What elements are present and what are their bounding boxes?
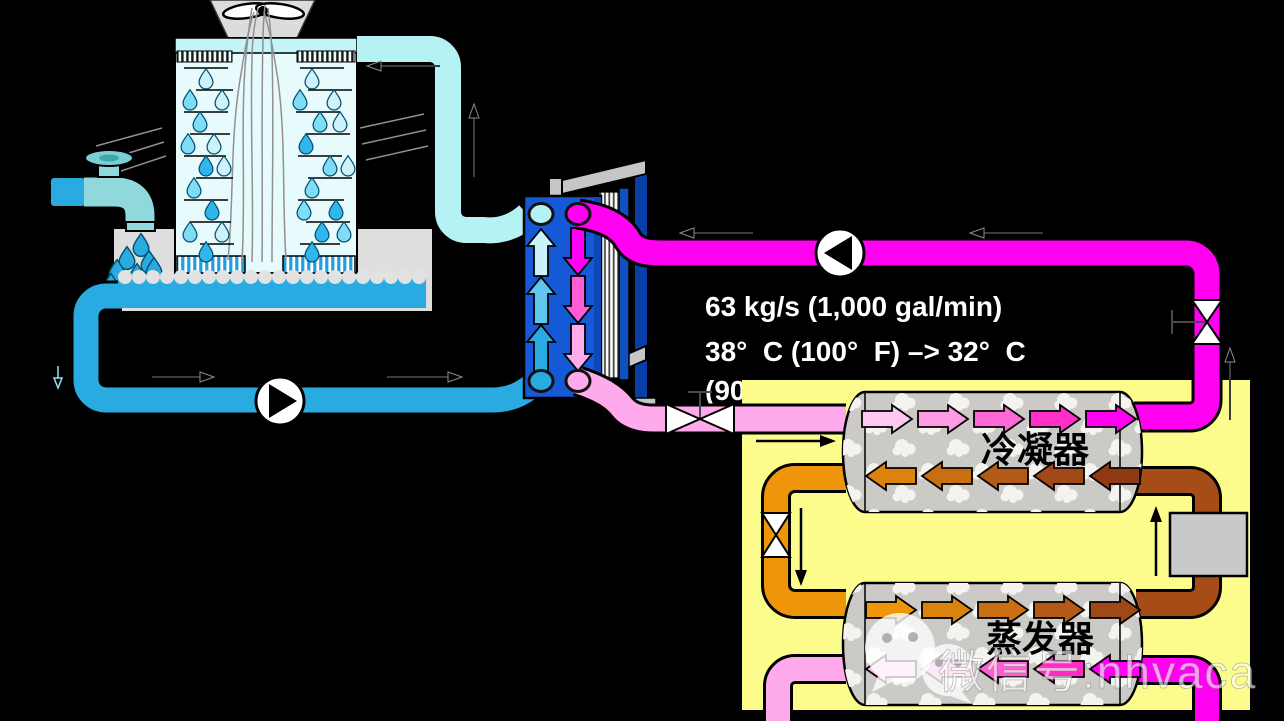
hvac-diagram: (90° F) bbox=[0, 0, 1284, 721]
watermark-text: 微信号:nhvaca bbox=[938, 646, 1257, 698]
flow-rate-label: 63 kg/s (1,000 gal/min) bbox=[705, 291, 1002, 322]
condenser-water-pump bbox=[816, 229, 864, 277]
temperature-label: 38° C (100° F) –> 32° C bbox=[705, 336, 1026, 367]
plate-heat-exchanger bbox=[524, 160, 656, 405]
spray-nozzle-band-right bbox=[297, 51, 355, 62]
hx-end-plate bbox=[634, 161, 648, 403]
compressor-box bbox=[1170, 513, 1247, 576]
diagram-canvas: (90° F) bbox=[0, 0, 1284, 721]
spray-nozzle-band-left bbox=[177, 51, 232, 62]
cooling-water-pump bbox=[256, 377, 304, 425]
condenser-label: 冷凝器 bbox=[981, 429, 1090, 470]
